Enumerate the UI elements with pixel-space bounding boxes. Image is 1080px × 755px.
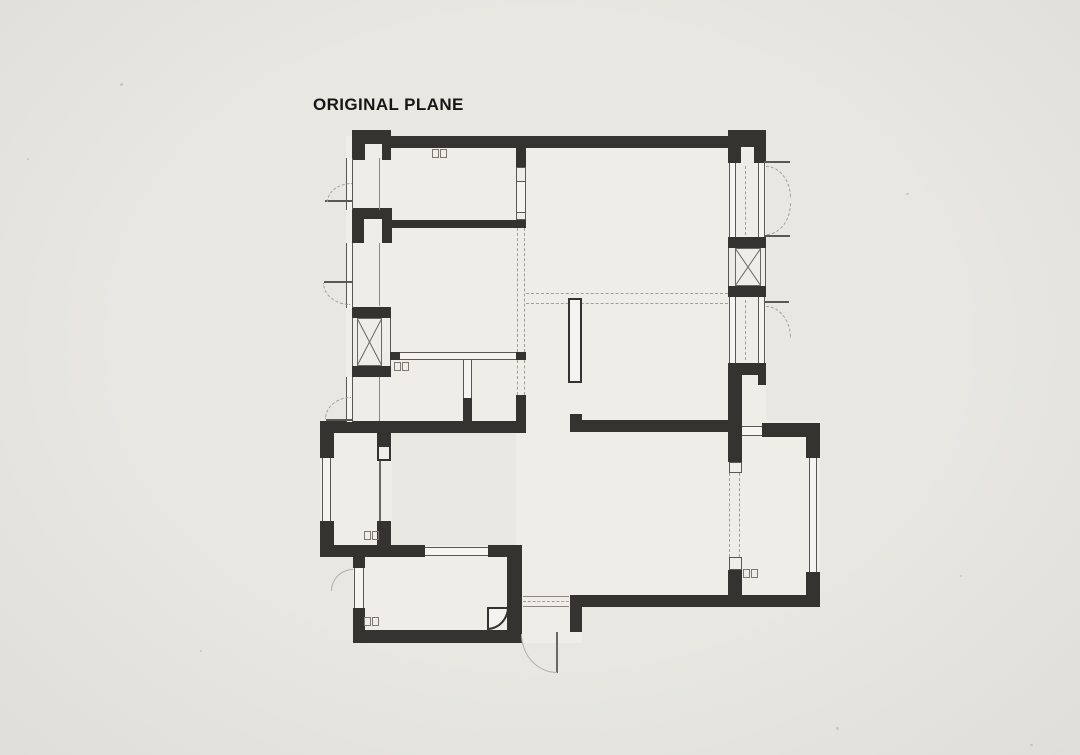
paper-speck — [836, 727, 839, 730]
wall-balcony-right — [377, 521, 391, 545]
paper-speck — [120, 83, 123, 86]
casement-tick — [764, 235, 790, 237]
paper-speck — [960, 575, 962, 577]
wall-room-right — [507, 545, 522, 632]
wall-bottom — [570, 595, 820, 607]
threshold-line — [523, 596, 569, 597]
wall-right-vertical-upper — [728, 385, 742, 462]
casement-tick — [764, 161, 790, 163]
partition-horizontal — [390, 352, 526, 360]
floor-main — [346, 136, 766, 433]
beam-dashed-line — [526, 293, 728, 294]
window-between-walls — [742, 426, 762, 436]
door-jamb-box — [729, 462, 742, 473]
wall-mid-vertical-top — [516, 136, 526, 167]
window-room-top — [425, 547, 488, 556]
paper-speck — [906, 193, 909, 195]
bay-center-dashed — [745, 166, 746, 235]
wall-left-end-cap — [320, 421, 334, 458]
floor-hall-upper — [516, 433, 582, 595]
wall-top — [352, 136, 766, 148]
wall-left-bottom-horizontal — [320, 421, 526, 433]
floor-bottom-right — [570, 420, 820, 607]
window-inner-line — [379, 377, 380, 421]
wall-notch — [364, 219, 382, 243]
wall-room-top-a — [330, 545, 425, 557]
partition-vertical — [463, 360, 472, 398]
wall-room-left-upper — [353, 557, 365, 568]
window-box-mid-wall — [516, 212, 526, 220]
plan-tag-symbol — [743, 569, 758, 578]
partition-cap — [516, 352, 526, 360]
wall-mid-horizontal — [570, 420, 742, 432]
shaft-x-icon — [357, 318, 382, 366]
casement-swing-arc — [766, 166, 791, 198]
wall-corner-bottom-right-top-v — [806, 423, 820, 458]
beam-dashed-line — [526, 303, 728, 304]
beam-dashed-line — [517, 360, 518, 395]
casement-swing-arc — [327, 183, 352, 202]
window-box-mid-wall — [516, 167, 526, 182]
door-frame-room-left — [354, 568, 364, 608]
wall-notch — [742, 375, 758, 385]
wall-bedroom-divider — [392, 220, 526, 228]
window-inner-line — [379, 158, 380, 210]
casement-swing-arc — [766, 306, 791, 338]
glazing-mid-wall — [516, 182, 526, 212]
wall-notch — [379, 447, 389, 459]
wall-mid-horizontal-cap — [570, 414, 582, 432]
beam-dashed-line — [524, 360, 525, 395]
wall-room-bottom — [353, 630, 522, 643]
shaft-left-cap-bottom — [352, 366, 391, 377]
window-right-bay-inner-1 — [729, 163, 736, 237]
paper-speck — [1030, 744, 1033, 746]
casement-tick — [764, 301, 789, 303]
window-right-lower — [809, 458, 817, 572]
shaft-right-cap-top — [728, 237, 766, 248]
paper-speck — [200, 650, 202, 652]
pillar-outline — [568, 298, 582, 383]
door-swing-arc-room — [331, 569, 353, 591]
shaft-right-cap-bottom — [728, 286, 766, 297]
casement-swing-arc — [325, 397, 351, 419]
window-right-bay-outer-2 — [758, 297, 765, 363]
partition-vertical-cap — [463, 398, 472, 421]
window-inner-line — [379, 243, 380, 306]
casement-swing-arc — [766, 203, 791, 235]
shaft-x-icon — [735, 248, 761, 286]
threshold-dashed — [523, 601, 569, 602]
plan-tag-symbol — [364, 531, 379, 540]
plan-tag-symbol — [394, 362, 409, 371]
bay-center-dashed — [745, 300, 746, 360]
door-jamb-box — [729, 557, 742, 570]
plan-tag-symbol — [432, 149, 447, 158]
window-left-4 — [322, 458, 331, 521]
beam-dashed-line — [524, 228, 525, 352]
casement-tick — [326, 419, 352, 421]
opening-dashed-line — [739, 473, 740, 557]
threshold-line — [523, 606, 569, 607]
floor-bottom-room — [353, 545, 522, 643]
wall-porch-step — [570, 607, 582, 632]
paper-speck — [27, 158, 29, 160]
corner-notch — [741, 147, 754, 163]
shaft-left-cap-top — [352, 307, 391, 318]
floor-plan-canvas: ORIGINAL PLANE — [0, 0, 1080, 755]
window-right-bay-outer-1 — [758, 163, 765, 237]
entry-door-swing-arc — [521, 634, 557, 673]
opening-dashed-line — [729, 473, 730, 557]
casement-swing-arc — [323, 283, 350, 305]
partition-cap — [390, 352, 400, 360]
window-right-bay-inner-2 — [729, 297, 736, 363]
plan-tag-symbol — [364, 617, 379, 626]
beam-dashed-line — [517, 228, 518, 352]
balcony-partition-line — [379, 461, 381, 521]
plan-title: ORIGINAL PLANE — [313, 95, 464, 115]
